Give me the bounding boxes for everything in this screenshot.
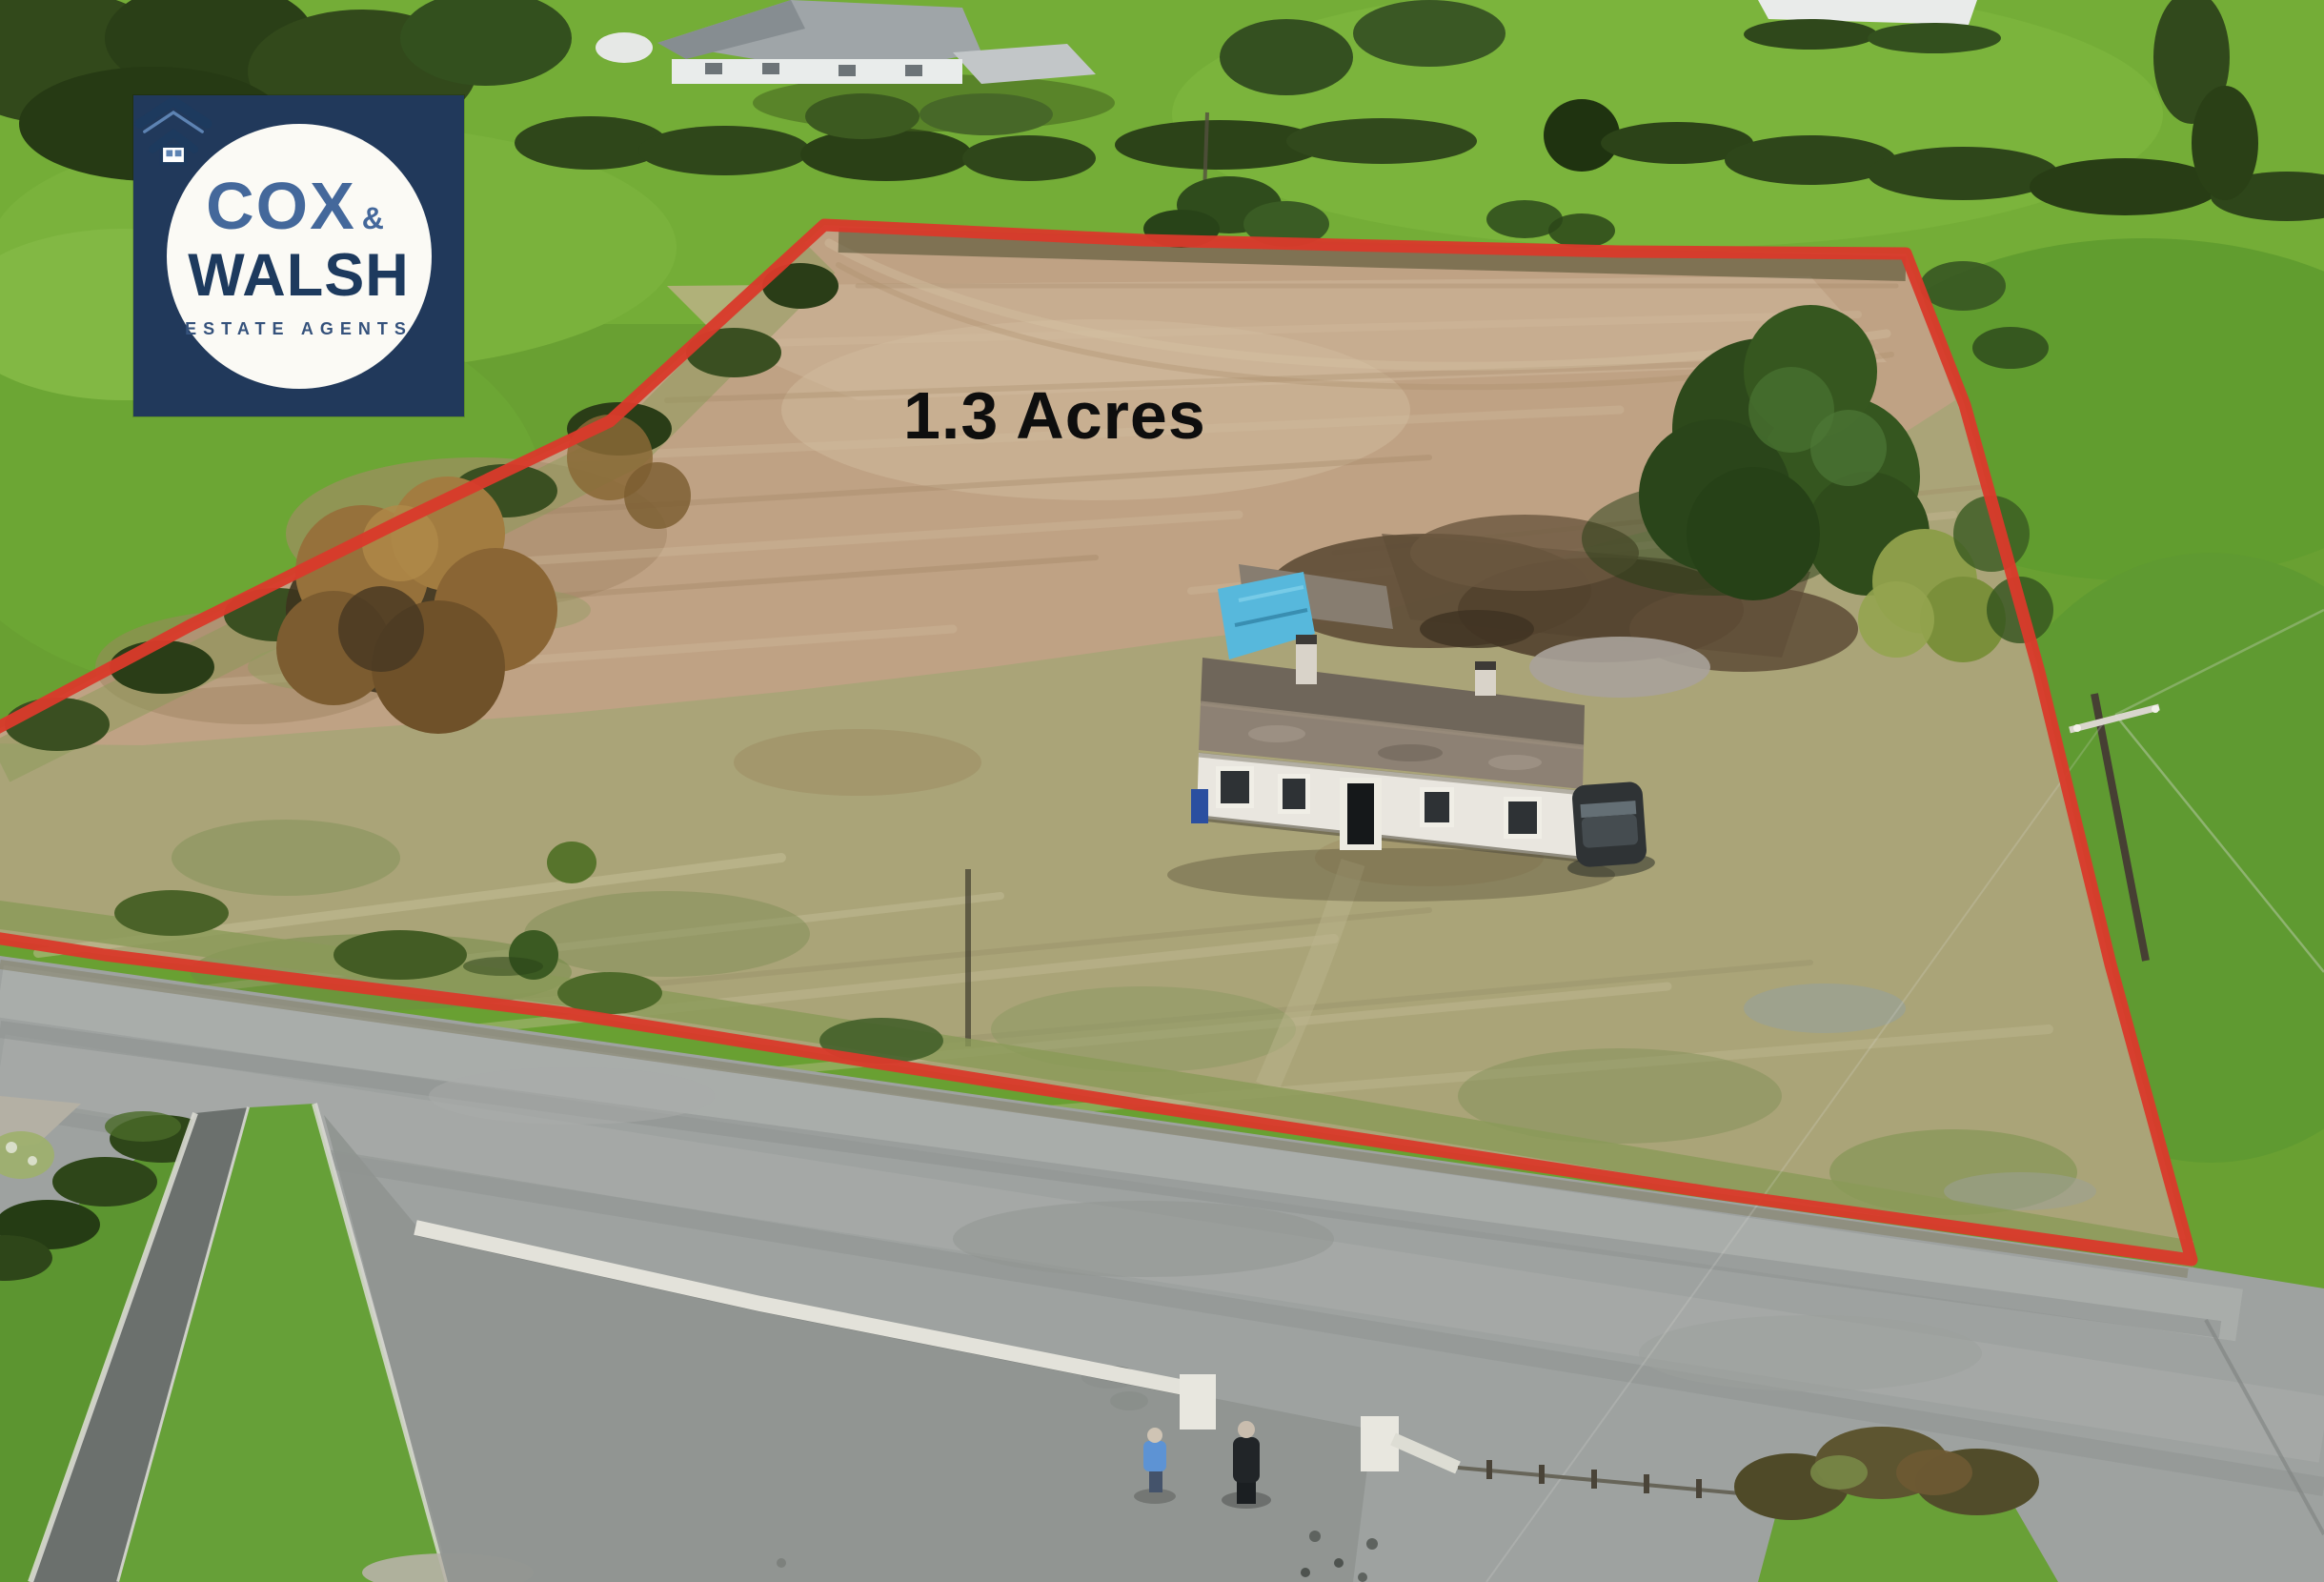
front-door <box>1347 783 1374 844</box>
logo-text-ampersand: & <box>362 203 384 233</box>
chimney <box>1296 639 1317 684</box>
gravel-patch-2 <box>1744 984 1906 1033</box>
distant-vehicle <box>596 32 653 63</box>
logo-tagline: ESTATE AGENTS <box>185 319 413 339</box>
agency-logo: COX & WALSH ESTATE AGENTS <box>133 95 464 416</box>
gravel-patch <box>1529 637 1710 698</box>
parked-car <box>1562 781 1656 880</box>
area-label: 1.3 Acres <box>903 377 1206 454</box>
logo-text-cox: COX <box>206 172 356 239</box>
wheelie-bin <box>1191 789 1208 823</box>
small-bush <box>547 842 596 883</box>
gate-pillar <box>1180 1374 1216 1430</box>
property-aerial-photo: 1.3 Acres COX & WALSH ESTATE <box>0 0 2324 1582</box>
agency-logo-circle: COX & WALSH ESTATE AGENTS <box>167 124 432 389</box>
logo-text-walsh: WALSH <box>188 241 409 310</box>
